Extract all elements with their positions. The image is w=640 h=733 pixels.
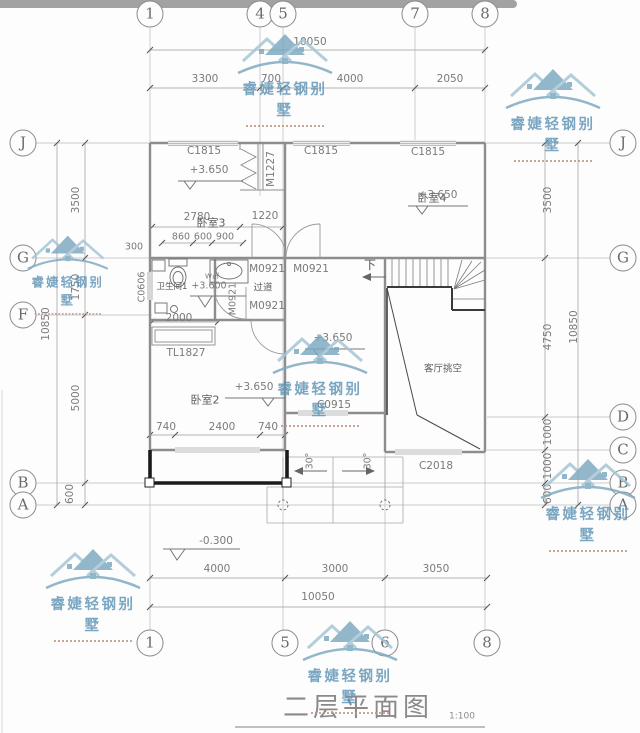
door-tag-m0921: M0921 (293, 264, 329, 275)
windows (147, 140, 462, 455)
dim-left-overall: 10850 (41, 307, 52, 340)
dim-right-seg: 3500 (543, 187, 554, 214)
grid-bottom-8: 8 (482, 636, 492, 651)
direction-arrows (294, 273, 386, 475)
grid-right-d: D (617, 410, 629, 425)
dim-interior: 740 (156, 422, 176, 433)
room-label-bed3: 卧室3 (197, 218, 226, 229)
dim-interior: 300 (125, 242, 143, 252)
grid-right-c: C (617, 443, 628, 458)
dim-top-seg: 2050 (437, 74, 464, 85)
balcony-post (282, 478, 291, 487)
closet-frame (240, 143, 285, 190)
slope-label: 30° (363, 453, 373, 470)
grid-right-g: G (617, 251, 629, 266)
window-tag-c1815: C1815 (411, 147, 445, 158)
stair-rails (387, 287, 485, 310)
room-label-bath1: 卫生间1 (157, 283, 188, 292)
grid-right-a: A (618, 498, 629, 513)
grid-left-a: A (18, 498, 29, 513)
window-tag-c0606: C0606 (137, 272, 147, 303)
dim-interior: 600 (194, 232, 212, 242)
room-label-bed2: 卧室2 (191, 395, 220, 406)
grid-top-1: 1 (145, 7, 155, 22)
grid-top-8: 8 (480, 7, 490, 22)
dim-top-seg: 3300 (192, 74, 219, 85)
slope-label: 30° (305, 453, 315, 470)
toilet-tank (169, 259, 187, 266)
dim-interior: 1220 (252, 211, 279, 222)
grid-top-5: 5 (278, 7, 288, 22)
grid-left-b: B (17, 476, 28, 491)
drawing-scale: 1:100 (449, 713, 475, 722)
door-tag-m0921: M0921 (228, 283, 238, 315)
dim-bottom-seg: 3050 (423, 564, 450, 575)
dim-right-overall: 10850 (569, 310, 580, 343)
room-label-corridor: 过道 (253, 283, 272, 293)
room-label-void: 客厅挑空 (424, 364, 462, 374)
level-mark: +3.600 (191, 281, 226, 291)
level-mark: -0.300 (199, 536, 233, 547)
window-tag-c1815: C1815 (304, 146, 338, 157)
dim-top-seg: 700 (261, 74, 281, 85)
dim-right-seg: 1000 (543, 453, 554, 480)
grid-bottom-1: 1 (145, 636, 155, 651)
dim-interior: 740 (258, 422, 278, 433)
dim-interior: 2000 (166, 313, 193, 324)
grid-right-b: B (617, 476, 628, 491)
dim-bottom-seg: 4000 (204, 564, 231, 575)
dim-interior: 2400 (209, 422, 236, 433)
dim-interior: 860 (172, 232, 190, 242)
dim-right-seg: 1000 (543, 419, 554, 446)
bay-tag-tl1827: TL1827 (167, 348, 206, 359)
grid-bottom-6: 6 (380, 636, 390, 651)
level-mark: +3.650 (235, 382, 274, 393)
bay-window (152, 327, 215, 345)
dim-bottom-seg: 3000 (322, 564, 349, 575)
grid-left-j: J (20, 136, 26, 151)
grid-lines (36, 28, 610, 630)
floor-plan-sheet: 1 4 5 7 8 1 5 6 8 J G F B A J G D C B A … (0, 0, 640, 733)
window-tag-c1815: C1815 (187, 146, 221, 157)
window-tag-c2018: C2018 (419, 461, 453, 472)
floorplan-linework (0, 0, 640, 733)
level-mark: +3.650 (314, 333, 353, 344)
grid-right-j: J (620, 136, 626, 151)
dim-left-seg: 1750 (71, 274, 82, 301)
grid-top-4: 4 (255, 7, 265, 22)
balcony-post (145, 478, 154, 487)
dim-top-overall: 10050 (293, 37, 326, 48)
dim-top-seg: 4000 (337, 74, 364, 85)
dim-left-seg: 600 (65, 484, 76, 504)
grid-left-g: G (17, 251, 29, 266)
shower-shelf (152, 260, 165, 271)
dim-left-seg: 5000 (71, 385, 82, 412)
dim-bottom-overall: 10050 (301, 592, 334, 603)
dimension-lines (57, 50, 578, 607)
dim-interior: 900 (216, 232, 234, 242)
dim-right-seg: 4750 (543, 324, 554, 351)
stair-down-label: 下 (364, 259, 376, 271)
stair-treads (392, 259, 485, 299)
level-mark: +3.650 (419, 190, 458, 201)
grid-left-f: F (18, 308, 28, 323)
door-tag-m0921: M0921 (249, 264, 285, 275)
grid-top-7: 7 (410, 7, 420, 22)
level-mark: +3.650 (190, 165, 229, 176)
window-tag-c0915: C0915 (317, 400, 351, 411)
balcony-walls (150, 450, 287, 483)
washer-label: W㎡ (205, 274, 219, 281)
door-tag-m1227: M1227 (266, 151, 277, 187)
dim-right-seg: 600 (543, 484, 554, 504)
door-tag-m0921: M0921 (249, 301, 285, 312)
dim-left-seg: 3500 (71, 187, 82, 214)
drawing-title: 二层平面图 (283, 695, 433, 721)
dimension-ticks (54, 47, 581, 610)
grid-bottom-5: 5 (280, 636, 290, 651)
